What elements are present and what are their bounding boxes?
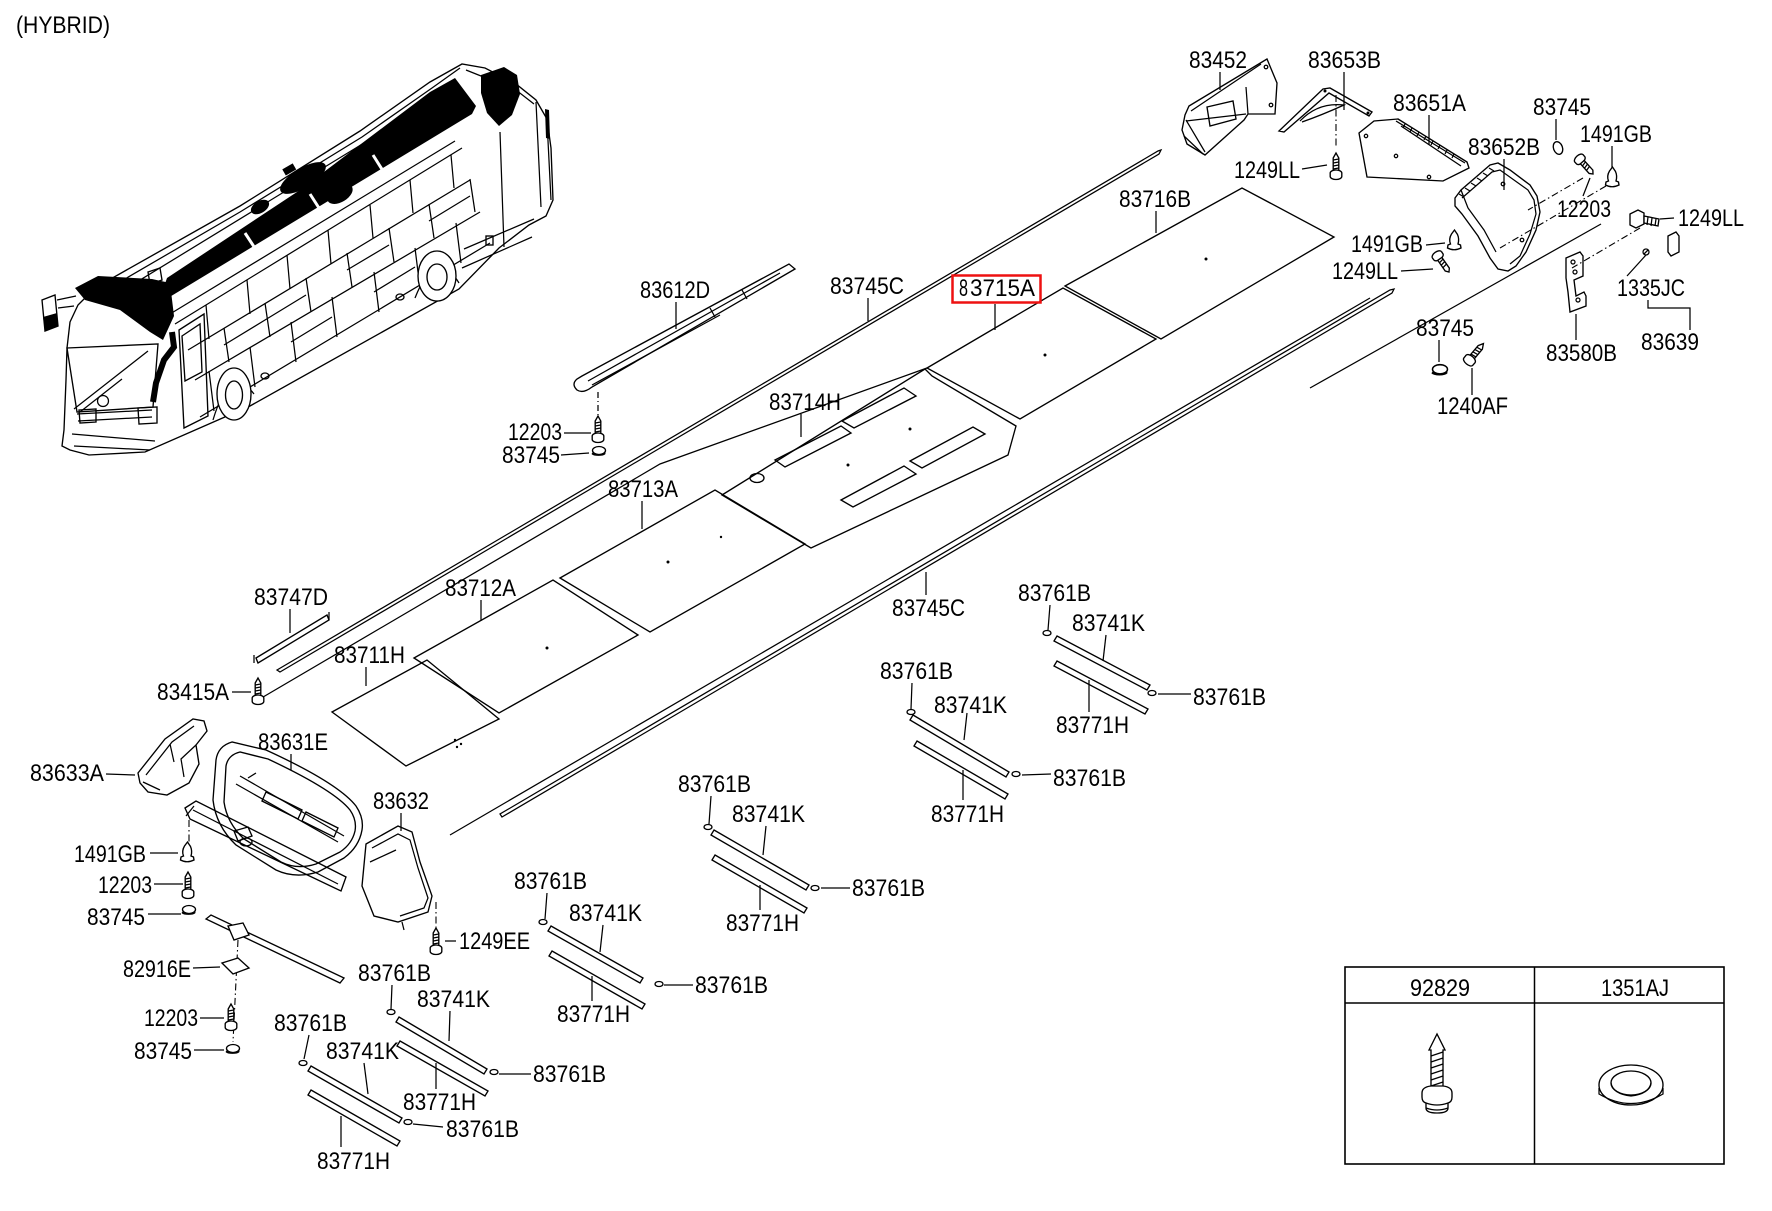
svg-text:83741K: 83741K: [732, 801, 805, 828]
svg-text:92829: 92829: [1410, 975, 1470, 1002]
svg-text:83631E: 83631E: [258, 729, 328, 756]
svg-text:8: 8: [959, 275, 968, 302]
svg-text:83452: 83452: [1189, 47, 1247, 74]
svg-text:83745C: 83745C: [830, 273, 904, 300]
svg-text:1240AF: 1240AF: [1437, 393, 1508, 420]
svg-text:83741K: 83741K: [934, 692, 1007, 719]
svg-text:83761B: 83761B: [533, 1061, 606, 1088]
svg-text:83761B: 83761B: [880, 658, 953, 685]
svg-text:83745C: 83745C: [892, 595, 965, 622]
svg-text:83761B: 83761B: [1193, 684, 1266, 711]
svg-text:83761B: 83761B: [446, 1116, 519, 1143]
svg-text:3715A: 3715A: [970, 275, 1035, 302]
svg-text:83745: 83745: [134, 1038, 192, 1065]
svg-text:83771H: 83771H: [931, 801, 1004, 828]
svg-text:83716B: 83716B: [1119, 186, 1191, 213]
svg-text:1249LL: 1249LL: [1234, 157, 1300, 184]
svg-text:83633A: 83633A: [30, 760, 104, 787]
svg-text:83771H: 83771H: [557, 1001, 630, 1028]
svg-text:12203: 12203: [1557, 196, 1611, 223]
svg-text:1335JC: 1335JC: [1617, 275, 1685, 302]
svg-text:83745: 83745: [1416, 315, 1474, 342]
svg-text:83771H: 83771H: [403, 1089, 476, 1116]
svg-text:(HYBRID): (HYBRID): [16, 12, 110, 39]
svg-text:83711H: 83711H: [334, 642, 405, 669]
svg-text:83761B: 83761B: [358, 960, 431, 987]
svg-text:12203: 12203: [98, 872, 152, 899]
svg-text:83741K: 83741K: [1072, 610, 1145, 637]
svg-text:83761B: 83761B: [514, 868, 587, 895]
svg-text:83771H: 83771H: [726, 910, 799, 937]
svg-text:1249LL: 1249LL: [1332, 258, 1398, 285]
svg-text:83761B: 83761B: [1018, 580, 1091, 607]
svg-text:1249LL: 1249LL: [1678, 205, 1744, 232]
svg-text:83745: 83745: [502, 442, 560, 469]
svg-text:83612D: 83612D: [640, 277, 710, 304]
svg-text:83713A: 83713A: [608, 476, 678, 503]
svg-text:83771H: 83771H: [317, 1148, 390, 1175]
svg-text:83632: 83632: [373, 788, 429, 815]
svg-text:83761B: 83761B: [852, 875, 925, 902]
svg-text:83741K: 83741K: [417, 986, 490, 1013]
svg-text:83761B: 83761B: [678, 771, 751, 798]
svg-text:1351AJ: 1351AJ: [1601, 975, 1669, 1002]
svg-text:83761B: 83761B: [1053, 765, 1126, 792]
svg-text:1491GB: 1491GB: [74, 841, 146, 868]
svg-text:82916E: 82916E: [123, 956, 191, 983]
svg-text:83741K: 83741K: [569, 900, 642, 927]
svg-text:83651A: 83651A: [1393, 90, 1466, 117]
svg-text:83714H: 83714H: [769, 389, 841, 416]
svg-text:1249EE: 1249EE: [459, 928, 530, 955]
svg-text:83741K: 83741K: [326, 1038, 399, 1065]
svg-text:83745: 83745: [87, 904, 145, 931]
svg-text:83712A: 83712A: [445, 575, 516, 602]
svg-text:83761B: 83761B: [274, 1010, 347, 1037]
svg-text:83639: 83639: [1641, 329, 1699, 356]
svg-text:1491GB: 1491GB: [1580, 121, 1652, 148]
svg-text:83761B: 83761B: [695, 972, 768, 999]
svg-text:83652B: 83652B: [1468, 134, 1540, 161]
svg-text:1491GB: 1491GB: [1351, 231, 1423, 258]
svg-text:83745: 83745: [1533, 94, 1591, 121]
svg-text:83580B: 83580B: [1546, 340, 1617, 367]
svg-text:83653B: 83653B: [1308, 47, 1381, 74]
svg-text:83771H: 83771H: [1056, 712, 1129, 739]
svg-text:12203: 12203: [144, 1005, 198, 1032]
svg-text:83747D: 83747D: [254, 584, 328, 611]
svg-text:83415A: 83415A: [157, 679, 229, 706]
